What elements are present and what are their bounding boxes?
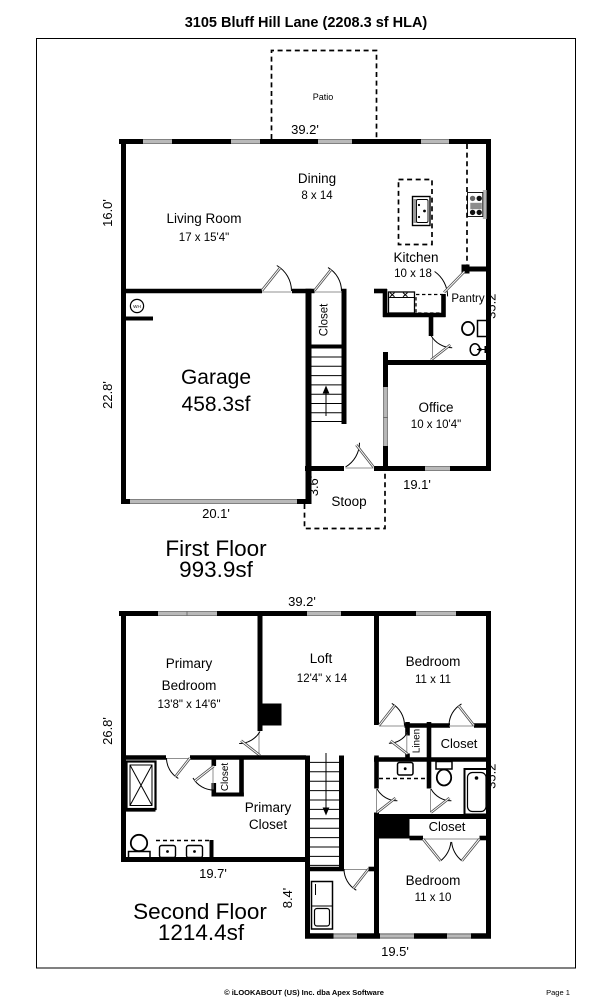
svg-text:1214.4sf: 1214.4sf bbox=[158, 920, 245, 945]
svg-text:17 x 15'4": 17 x 15'4" bbox=[179, 232, 229, 244]
svg-text:19.7': 19.7' bbox=[199, 866, 227, 881]
svg-text:Primary: Primary bbox=[166, 656, 213, 671]
svg-text:Garage: Garage bbox=[181, 366, 251, 389]
svg-text:16.0': 16.0' bbox=[100, 199, 115, 227]
svg-text:Closet: Closet bbox=[429, 819, 466, 834]
svg-text:19.1': 19.1' bbox=[403, 477, 431, 492]
svg-text:Loft: Loft bbox=[310, 651, 333, 666]
svg-text:39.2': 39.2' bbox=[288, 594, 316, 609]
svg-text:8.4': 8.4' bbox=[280, 888, 295, 909]
svg-text:Dining: Dining bbox=[298, 171, 336, 186]
svg-text:WH: WH bbox=[133, 304, 141, 309]
svg-text:Closet: Closet bbox=[220, 763, 231, 792]
svg-text:10 x 10'4": 10 x 10'4" bbox=[411, 419, 461, 431]
svg-text:20.1': 20.1' bbox=[202, 506, 230, 521]
svg-text:39.2': 39.2' bbox=[291, 122, 319, 137]
svg-text:Primary: Primary bbox=[245, 800, 292, 815]
svg-text:Pantry: Pantry bbox=[451, 293, 484, 305]
svg-text:10 x 18: 10 x 18 bbox=[394, 268, 432, 280]
svg-text:22.8': 22.8' bbox=[100, 381, 115, 409]
svg-text:Office: Office bbox=[418, 400, 453, 415]
svg-text:© iLOOKABOUT (US) Inc. dba Ape: © iLOOKABOUT (US) Inc. dba Apex Software bbox=[224, 988, 384, 997]
svg-text:12'4" x 14: 12'4" x 14 bbox=[297, 673, 348, 685]
svg-text:35.2': 35.2' bbox=[484, 761, 499, 789]
svg-text:Closet: Closet bbox=[441, 736, 478, 751]
svg-text:458.3sf: 458.3sf bbox=[182, 393, 251, 416]
svg-text:Kitchen: Kitchen bbox=[393, 250, 438, 265]
svg-text:Bedroom: Bedroom bbox=[406, 654, 461, 669]
svg-text:Stoop: Stoop bbox=[331, 494, 366, 509]
svg-text:Closet: Closet bbox=[319, 303, 331, 336]
svg-text:Living Room: Living Room bbox=[166, 211, 241, 226]
svg-text:993.9sf: 993.9sf bbox=[179, 557, 254, 582]
svg-text:11 x 11: 11 x 11 bbox=[415, 674, 451, 686]
svg-text:35.2': 35.2' bbox=[484, 291, 499, 319]
svg-text:3105 Bluff Hill Lane (2208.3 s: 3105 Bluff Hill Lane (2208.3 sf HLA) bbox=[185, 15, 428, 31]
svg-text:19.5': 19.5' bbox=[381, 944, 409, 959]
svg-text:13'8" x 14'6": 13'8" x 14'6" bbox=[157, 699, 220, 711]
svg-text:3.6': 3.6' bbox=[306, 476, 321, 497]
svg-text:26.8': 26.8' bbox=[100, 717, 115, 745]
svg-text:Closet: Closet bbox=[249, 817, 288, 832]
svg-text:Patio: Patio bbox=[313, 92, 334, 102]
svg-text:Page 1: Page 1 bbox=[546, 988, 570, 997]
svg-text:Linen: Linen bbox=[412, 729, 423, 753]
svg-text:8 x 14: 8 x 14 bbox=[301, 190, 333, 202]
svg-text:Bedroom: Bedroom bbox=[406, 873, 461, 888]
svg-text:11 x 10: 11 x 10 bbox=[415, 892, 452, 904]
svg-text:Bedroom: Bedroom bbox=[162, 678, 217, 693]
